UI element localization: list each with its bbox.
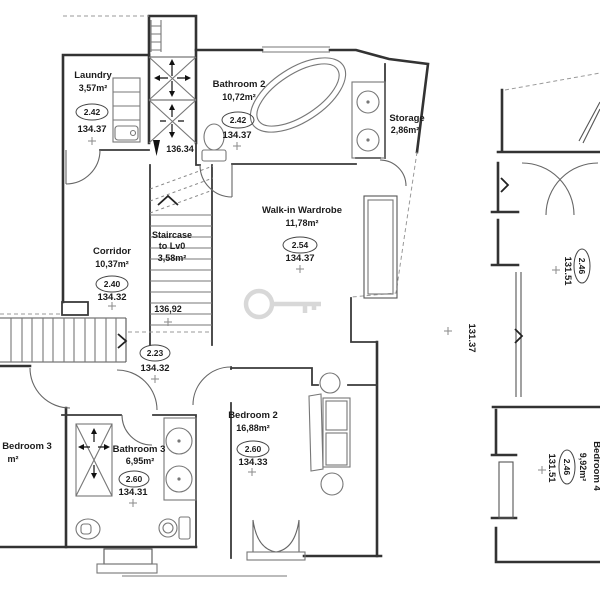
bedroom2-ceiling-label: 2.60 xyxy=(245,444,262,454)
bedroom2-name-label: Bedroom 2 xyxy=(228,410,278,421)
level-cross xyxy=(88,137,96,145)
landing-door xyxy=(117,370,157,410)
bathtub xyxy=(238,43,358,147)
staircase-area-label: 3,58m² xyxy=(158,253,187,263)
corridor-name-label: Corridor xyxy=(93,246,131,257)
right-upper-ceiling-label: 2.46 xyxy=(577,258,587,275)
level-cross xyxy=(552,266,560,274)
chimney-box xyxy=(97,549,287,576)
corridor-ceiling-label: 2.40 xyxy=(104,279,121,289)
bathroom2-window xyxy=(262,47,330,52)
french-doors xyxy=(247,520,305,560)
bedroom2-area-label: 16,88m² xyxy=(236,423,270,433)
ladder xyxy=(151,20,161,52)
labels: Laundry 3,57m² 2.42 134.37 Bathroom 2 10… xyxy=(2,70,600,507)
door-leaf xyxy=(579,102,600,143)
bathroom2-area-label: 10,72m² xyxy=(222,92,256,102)
laundry-name-label: Laundry xyxy=(74,70,112,81)
level-cross xyxy=(233,142,241,150)
right-upper-level-label: 131.51 xyxy=(562,256,573,286)
bathroom3-ceiling-label: 2.60 xyxy=(126,474,143,484)
stairs-lower-flight xyxy=(0,318,126,362)
bedroom3-door xyxy=(30,368,70,408)
bathroom3-door xyxy=(122,415,152,445)
slope-hatch xyxy=(150,166,213,213)
right-plan-walls xyxy=(492,73,600,562)
balcony-door xyxy=(499,462,513,518)
landing-level-label: 134.32 xyxy=(140,363,169,374)
bathroom2-ceiling-label: 2.42 xyxy=(230,115,247,125)
bathroom2-door xyxy=(200,165,232,197)
bathroom2-vanity xyxy=(352,82,385,158)
landing-ceiling-label: 2.23 xyxy=(147,348,164,358)
level-cross xyxy=(108,302,116,310)
laundry-level-label: 134.37 xyxy=(77,124,106,135)
bathroom3-area-label: 6,95m² xyxy=(126,456,155,466)
bathroom2-name-label: Bathroom 2 xyxy=(213,79,266,90)
bathroom3-toilet xyxy=(159,517,190,539)
storage-area-label: 2,86m² xyxy=(391,125,420,135)
staircase-name-label-1: Staircase xyxy=(152,230,192,240)
wardrobe-area-label: 11,78m² xyxy=(285,218,318,228)
wardrobe-ceiling-label: 2.54 xyxy=(292,240,309,250)
bathroom3-name-label: Bathroom 3 xyxy=(113,444,166,455)
laundry-appliances xyxy=(113,78,140,142)
wardrobe-name-label: Walk-in Wardrobe xyxy=(262,205,342,216)
wall-nib xyxy=(62,302,88,315)
laundry-ceiling-label: 2.42 xyxy=(84,107,101,117)
nightstand xyxy=(320,373,340,393)
window-arrow xyxy=(501,178,508,192)
skylight-spot-level: 136.34 xyxy=(166,144,194,154)
nightstand xyxy=(321,473,343,495)
level-cross xyxy=(296,265,304,273)
stair-head-spot-level: 136,92 xyxy=(154,304,182,314)
bedroom4-name-label: Bedroom 4 xyxy=(591,441,600,491)
wardrobe-cabinet xyxy=(364,196,397,298)
storage-name-label: Storage xyxy=(389,113,424,124)
bedroom3-name-label: Bedroom 3 xyxy=(2,441,52,452)
bedroom4-level-label: 131.51 xyxy=(546,453,557,483)
wardrobe-level-label: 134.37 xyxy=(285,253,314,264)
bidet xyxy=(76,519,100,539)
bedroom2-level-label: 134.33 xyxy=(238,457,267,468)
blanket xyxy=(326,433,347,465)
bedroom4-area-label: 9,92m² xyxy=(578,453,588,482)
bathroom3-vanity xyxy=(164,418,196,500)
bedroom3-area-label: m² xyxy=(8,454,19,464)
key-watermark xyxy=(246,291,321,317)
bathroom3-skylight xyxy=(76,424,112,496)
bedroom4-ceiling-label: 2.46 xyxy=(562,459,572,476)
level-cross xyxy=(444,327,452,335)
skylight-arrows xyxy=(154,59,191,138)
washer xyxy=(115,126,138,140)
section-mid-level-label: 131.37 xyxy=(466,323,477,352)
laundry-area-label: 3,57m² xyxy=(79,83,108,93)
headboard xyxy=(309,394,323,471)
stair-direction-arrow xyxy=(118,334,126,348)
double-door-arcs xyxy=(522,163,598,215)
level-cross xyxy=(129,499,137,507)
staircase-name-label-2: to Lv0 xyxy=(159,241,186,251)
pillow xyxy=(326,401,347,430)
level-cross xyxy=(151,375,159,383)
floor-plan-page: Laundry 3,57m² 2.42 134.37 Bathroom 2 10… xyxy=(0,0,600,600)
storage-door xyxy=(380,160,406,186)
floor-plan: Laundry 3,57m² 2.42 134.37 Bathroom 2 10… xyxy=(0,0,600,600)
level-cross xyxy=(538,466,546,474)
level-cross xyxy=(248,468,256,476)
bathroom3-level-label: 134.31 xyxy=(118,487,148,498)
corridor-area-label: 10,37m² xyxy=(95,259,129,269)
bedroom2-door xyxy=(193,367,231,405)
section-marker xyxy=(153,140,160,156)
laundry-door xyxy=(66,150,100,184)
bathroom2-level-label: 134.37 xyxy=(222,130,251,141)
corridor-level-label: 134.32 xyxy=(97,292,126,303)
skylight-shaft xyxy=(149,20,196,156)
bed xyxy=(309,373,350,495)
